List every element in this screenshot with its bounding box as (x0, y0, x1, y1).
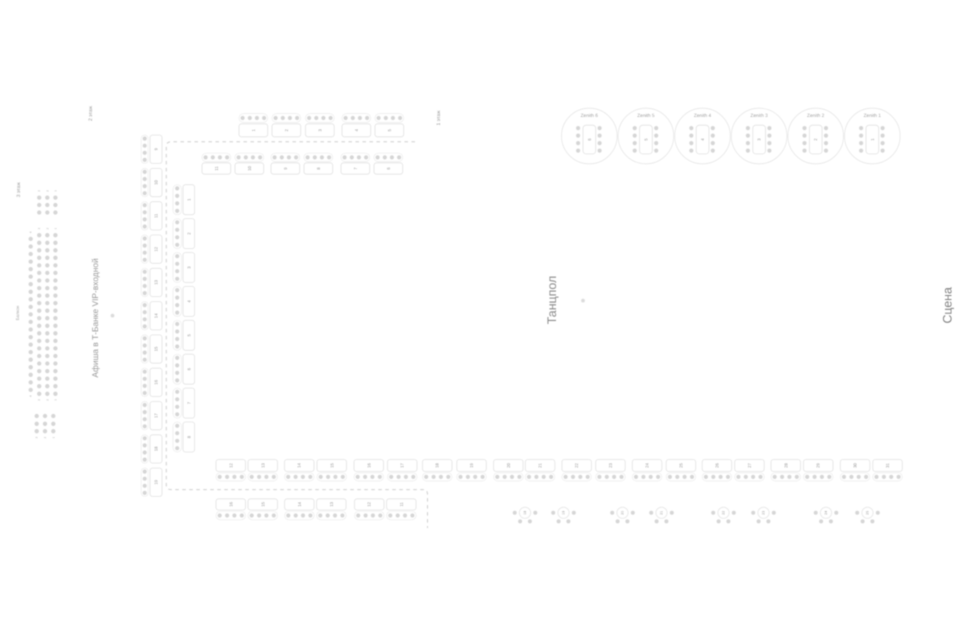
svg-text:17: 17 (154, 413, 159, 418)
svg-text:13: 13 (329, 501, 334, 506)
svg-text:1 этаж: 1 этаж (436, 110, 442, 126)
svg-text:25: 25 (679, 463, 684, 468)
svg-text:Сцена: Сцена (940, 287, 954, 323)
svg-text:21: 21 (660, 511, 664, 515)
svg-text:16: 16 (366, 463, 371, 468)
svg-text:19: 19 (469, 463, 474, 468)
svg-text:Zenith 6: Zenith 6 (581, 113, 599, 119)
svg-text:16: 16 (228, 501, 233, 506)
svg-text:11: 11 (399, 502, 404, 507)
svg-text:16: 16 (154, 379, 159, 384)
svg-text:14: 14 (297, 463, 302, 468)
svg-text:19: 19 (154, 479, 159, 484)
svg-text:10: 10 (247, 166, 252, 171)
svg-text:22: 22 (574, 463, 579, 468)
svg-text:15: 15 (260, 501, 265, 506)
svg-text:17: 17 (400, 463, 405, 468)
svg-text:30: 30 (853, 463, 858, 468)
svg-text:Zenith 1: Zenith 1 (864, 113, 882, 119)
svg-text:22: 22 (722, 511, 726, 515)
svg-text:Zenith 5: Zenith 5 (637, 113, 655, 119)
svg-text:25: 25 (866, 511, 870, 515)
svg-text:26: 26 (715, 463, 720, 468)
svg-text:3 этаж: 3 этаж (16, 182, 22, 198)
svg-text:14: 14 (154, 313, 159, 318)
svg-text:15: 15 (154, 346, 159, 351)
svg-text:18: 18 (435, 463, 440, 468)
svg-text:10: 10 (154, 180, 159, 185)
svg-text:23: 23 (762, 511, 766, 515)
svg-text:Zenith 2: Zenith 2 (807, 113, 825, 119)
svg-text:Zenith 4: Zenith 4 (694, 113, 712, 119)
svg-text:2 этаж: 2 этаж (88, 105, 94, 121)
svg-text:18: 18 (154, 446, 159, 451)
svg-text:14: 14 (297, 501, 302, 506)
svg-text:Балкон: Балкон (15, 305, 20, 320)
svg-text:11: 11 (154, 213, 159, 218)
svg-text:12: 12 (367, 501, 372, 506)
svg-text:12: 12 (154, 246, 159, 251)
svg-text:13: 13 (260, 463, 265, 468)
svg-text:20: 20 (506, 463, 511, 468)
svg-text:19: 19 (562, 511, 566, 515)
svg-text:Танцпол: Танцпол (545, 276, 559, 324)
svg-text:31: 31 (885, 463, 890, 468)
svg-text:11: 11 (214, 166, 219, 171)
svg-text:13: 13 (154, 279, 159, 284)
svg-text:29: 29 (816, 463, 821, 468)
svg-text:21: 21 (538, 463, 543, 468)
svg-text:Афиша в Т-Банке VIP-входной: Афиша в Т-Банке VIP-входной (90, 258, 100, 378)
svg-text:20: 20 (621, 511, 625, 515)
svg-text:15: 15 (329, 463, 334, 468)
svg-text:24: 24 (824, 511, 828, 515)
svg-text:28: 28 (783, 463, 788, 468)
svg-text:24: 24 (645, 463, 650, 468)
svg-text:12: 12 (228, 463, 233, 468)
svg-text:Zenith 3: Zenith 3 (750, 113, 768, 119)
svg-text:18: 18 (523, 511, 527, 515)
svg-text:27: 27 (747, 463, 752, 468)
svg-text:23: 23 (608, 463, 613, 468)
